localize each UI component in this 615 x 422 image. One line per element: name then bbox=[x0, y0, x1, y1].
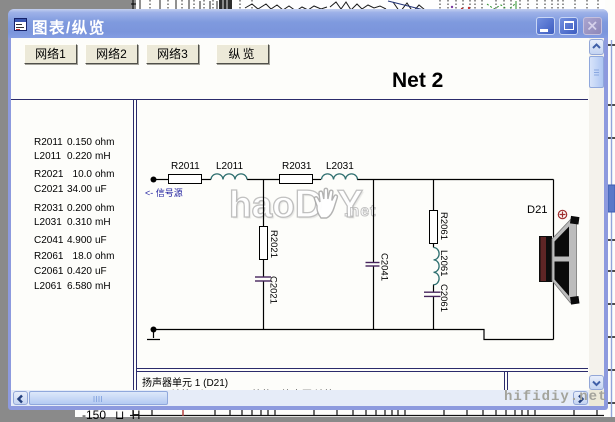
svg-text:R2061: R2061 bbox=[438, 212, 449, 240]
svg-text:C2061: C2061 bbox=[438, 284, 449, 312]
svg-text:L2031: L2031 bbox=[326, 161, 354, 172]
svg-text:R2011: R2011 bbox=[171, 161, 200, 172]
svg-text:L2011: L2011 bbox=[216, 161, 244, 172]
svg-text:C2021: C2021 bbox=[268, 276, 279, 304]
svg-text:R2031: R2031 bbox=[282, 161, 312, 172]
svg-text:<- 信号源: <- 信号源 bbox=[145, 187, 183, 198]
svg-text:R2021: R2021 bbox=[268, 230, 279, 258]
svg-text:L2061: L2061 bbox=[438, 250, 449, 276]
svg-text:D21: D21 bbox=[527, 204, 548, 216]
svg-text:C2041: C2041 bbox=[379, 253, 390, 281]
